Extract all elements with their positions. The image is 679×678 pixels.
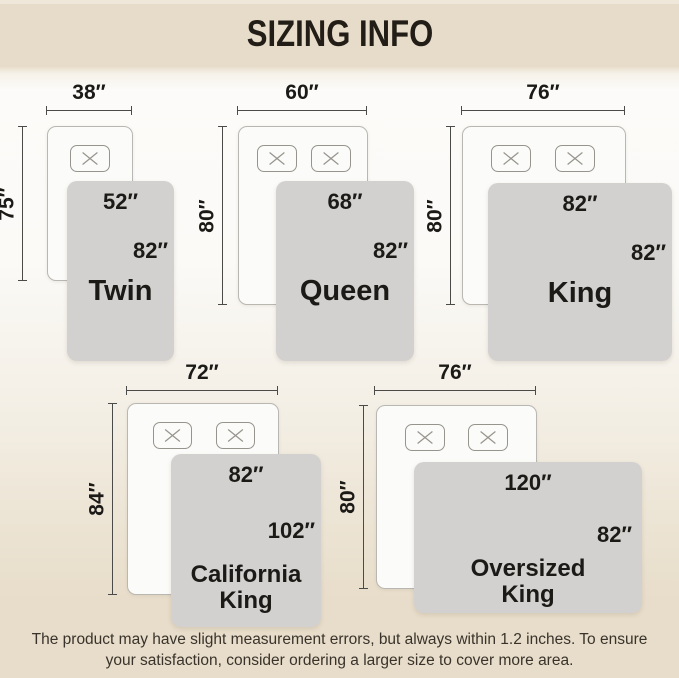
blanket-length-label: 82″ [597, 522, 632, 548]
dimension-line [126, 386, 278, 395]
queen-width-dimension: 60″ [238, 82, 366, 115]
pillow-icon [216, 422, 255, 449]
twin-bed-length-label: 75″ [0, 187, 18, 220]
california-king-bed-length-label: 84″ [87, 482, 108, 515]
oversized-king-length-dimension: 80″ [359, 405, 368, 589]
blanket: 82″ 82″ King [488, 183, 672, 361]
queen-bed-width-label: 60″ [285, 82, 318, 103]
pillow-icon [257, 145, 297, 172]
bed-size-name: California King [171, 562, 321, 614]
king-length-dimension: 80″ [446, 126, 455, 305]
bed-size-name: King [548, 278, 612, 309]
blanket-length-label: 102″ [268, 518, 315, 544]
oversized-king-width-dimension: 76″ [375, 362, 535, 395]
blanket-length-label: 82″ [133, 238, 168, 264]
king-bed-width-label: 76″ [526, 82, 559, 103]
pillow-icon [491, 145, 531, 172]
pillow-icon [405, 424, 445, 451]
dimension-line [374, 386, 536, 395]
pillow-icon [70, 145, 110, 172]
queen-length-dimension: 80″ [218, 126, 227, 305]
blanket-width-label: 120″ [414, 470, 642, 496]
twin-bed-width-label: 38″ [72, 82, 105, 103]
bed-size-name: Twin [89, 276, 153, 307]
pillow-icon [153, 422, 192, 449]
pillow-icon [311, 145, 351, 172]
dimension-line [46, 106, 132, 115]
pillow-icon [555, 145, 595, 172]
king-width-dimension: 76″ [462, 82, 624, 115]
twin-length-dimension: 75″ [18, 126, 27, 281]
dimension-line [237, 106, 367, 115]
queen-bed-length-label: 80″ [197, 199, 218, 232]
page-title: SIZING INFO [246, 13, 432, 55]
blanket: 82″ 102″ California King [171, 454, 321, 627]
pillow-icon [468, 424, 508, 451]
header-band: SIZING INFO [0, 0, 679, 67]
king-bed-length-label: 80″ [425, 199, 446, 232]
twin-width-dimension: 38″ [47, 82, 131, 115]
disclaimer-text: The product may have slight measurement … [20, 629, 659, 671]
dimension-line [461, 106, 625, 115]
blanket: 68″ 82″ Queen [276, 181, 414, 361]
oversized-king-bed-length-label: 80″ [338, 480, 359, 513]
california-king-width-dimension: 72″ [127, 362, 277, 395]
blanket-width-label: 82″ [171, 462, 321, 488]
california-king-bed-width-label: 72″ [185, 362, 218, 383]
oversized-king-bed-width-label: 76″ [438, 362, 471, 383]
bed-size-name: Oversized King [453, 556, 603, 608]
blanket-width-label: 68″ [276, 189, 414, 215]
sizing-info-infographic: SIZING INFO 38″ 75″ 52″ 82″ Twin 60″ 80″ [0, 0, 679, 678]
bed-size-name: Queen [300, 276, 390, 307]
blanket-length-label: 82″ [631, 240, 666, 266]
blanket-length-label: 82″ [373, 238, 408, 264]
blanket: 52″ 82″ Twin [67, 181, 174, 361]
blanket-width-label: 82″ [488, 191, 672, 217]
blanket-width-label: 52″ [67, 189, 174, 215]
california-king-length-dimension: 84″ [108, 403, 117, 595]
blanket: 120″ 82″ Oversized King [414, 462, 642, 613]
